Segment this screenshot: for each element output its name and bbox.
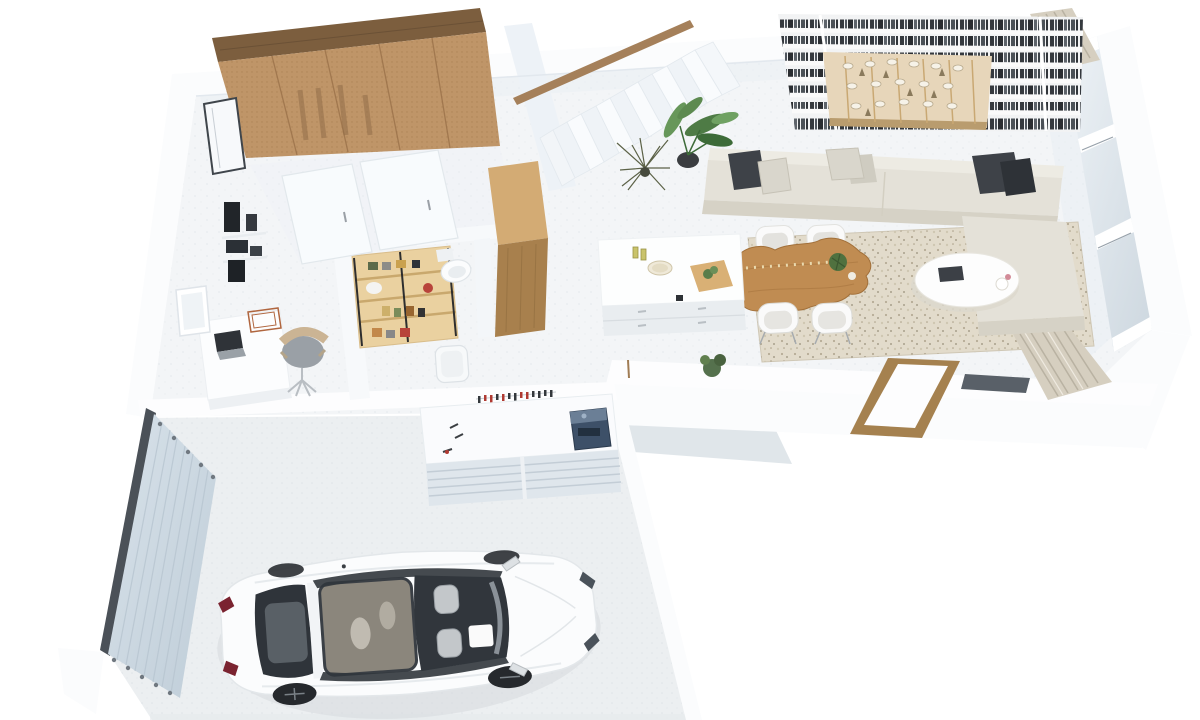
tool [538,391,541,398]
tool [490,395,493,403]
plant-entry-foliage [714,354,726,366]
tool [508,393,511,399]
sofa-pillow-light [758,158,791,194]
toolbox-panel [578,428,600,436]
entry-broom [628,360,629,378]
white-bin: White bin [435,345,469,383]
island-oil-bottle [641,249,646,260]
toilet-tank [436,248,454,262]
dining-chair-seat [764,310,793,329]
tool [544,390,547,396]
island-bowl-inner [652,264,668,273]
scattered-tool-tip [445,450,449,454]
bookshelf: Full-wall bookshelf [778,14,1083,132]
island-greens [710,266,718,274]
sofa-pillow-light [826,148,864,180]
left-window-pane [181,292,205,330]
shelf-item [226,240,248,253]
toolbox-dial [582,414,587,419]
coffee-table-cup [996,278,1008,290]
tool [484,395,487,401]
car-rear-window-reflection [264,601,308,664]
shelf-item [224,202,240,232]
island-oil-bottle [633,247,638,258]
workbench: Garage workbench Wall-mounted tools Blue… [420,390,621,506]
coffee-table-accent [1005,274,1011,280]
shelf-item [246,214,257,231]
car-cabin-glass [412,569,512,671]
coffee-table-book [938,266,964,282]
left-window: Side window [176,286,210,336]
shelf-item [228,260,245,282]
tool [496,394,499,400]
car-seat [433,584,459,614]
dining-chair-seat [818,310,847,329]
car-white-card [468,624,493,648]
tool [526,392,529,399]
island-dark-item [676,295,683,301]
floor-plan-render: Floor Entry porch Speckled area rug Whit… [0,0,1200,720]
car-seat [436,628,462,658]
toolbox: Blue toolbox [570,408,611,450]
bin-lid [440,350,464,377]
wood-cabinet-top [488,161,548,245]
floor-plan-canvas: Floor Entry porch Speckled area rug Whit… [0,0,1200,720]
tool [502,394,505,401]
shelf-item [250,246,262,256]
tool [478,396,481,403]
tool [532,391,535,397]
tool [550,390,553,397]
kitchen-island: Kitchen island [598,234,746,336]
tool [514,393,517,401]
plant-entry-foliage [700,355,710,365]
sofa-pillow-dark [1000,158,1036,196]
tool [520,392,523,398]
plant-dry-pot [640,167,650,177]
